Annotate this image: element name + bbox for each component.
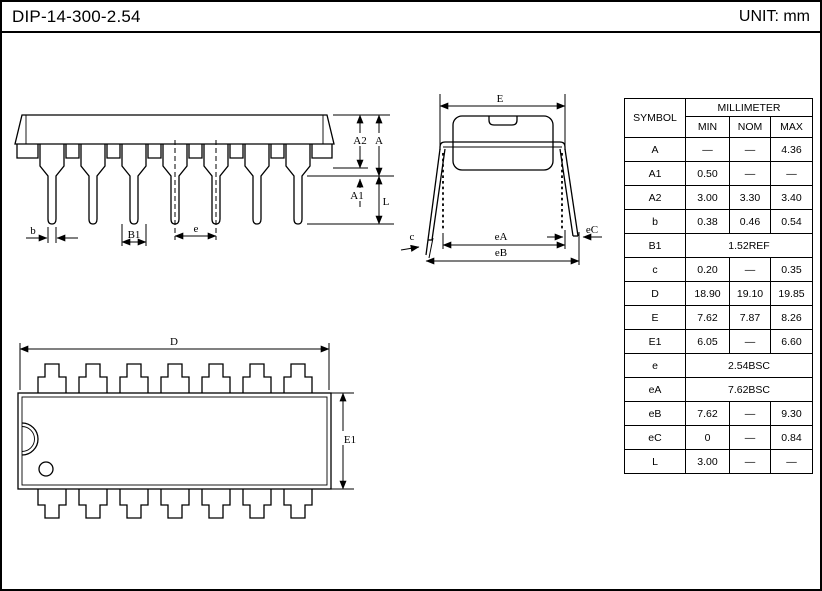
index-notch xyxy=(22,423,38,455)
side-view: e b B1 A2 A A1 xyxy=(15,115,394,246)
symbol-cell: B1 xyxy=(625,234,686,258)
symbol-cell: L xyxy=(625,450,686,474)
dim-label-c: c xyxy=(410,231,415,243)
symbol-cell: e xyxy=(625,354,686,378)
top-pins-upper xyxy=(38,364,312,393)
symbol-cell: A xyxy=(625,138,686,162)
table-row: E1 6.05 — 6.60 xyxy=(625,330,813,354)
symbol-cell: eB xyxy=(625,402,686,426)
dim-label-a: A xyxy=(375,135,383,147)
end-view: E c eA eB xyxy=(401,93,602,265)
table-row: A2 3.00 3.30 3.40 xyxy=(625,186,813,210)
table-row: eC 0 — 0.84 xyxy=(625,426,813,450)
symbol-cell: b xyxy=(625,210,686,234)
unit-label: UNIT: mm xyxy=(739,8,820,26)
dim-label-e1: E1 xyxy=(344,434,356,446)
symbol-cell: A2 xyxy=(625,186,686,210)
dim-label-d: D xyxy=(170,336,178,348)
dim-label-e-pitch: e xyxy=(194,223,199,235)
pin1-dot xyxy=(39,462,53,476)
table-row: L 3.00 — — xyxy=(625,450,813,474)
table-header-max: MAX xyxy=(771,117,813,138)
table-row: eA 7.62BSC xyxy=(625,378,813,402)
table-row: b 0.38 0.46 0.54 xyxy=(625,210,813,234)
dim-label-l: L xyxy=(383,196,390,208)
title-bar: DIP-14-300-2.54 UNIT: mm xyxy=(2,2,820,33)
dim-label-b1: B1 xyxy=(128,229,141,241)
package-title: DIP-14-300-2.54 xyxy=(2,7,141,27)
symbol-cell: eA xyxy=(625,378,686,402)
package-drawings: e b B1 A2 A A1 xyxy=(2,35,622,591)
table-row: B1 1.52REF xyxy=(625,234,813,258)
symbol-cell: eC xyxy=(625,426,686,450)
symbol-cell: D xyxy=(625,282,686,306)
top-pins-lower xyxy=(38,489,312,518)
table-row: eB 7.62 — 9.30 xyxy=(625,402,813,426)
table-header-symbol: SYMBOL xyxy=(625,99,686,138)
dim-label-b: b xyxy=(30,225,36,237)
dim-label-ec: eC xyxy=(586,224,598,236)
dim-label-a2: A2 xyxy=(353,135,366,147)
top-body xyxy=(18,393,331,489)
table-row: A1 0.50 — — xyxy=(625,162,813,186)
dim-label-ea: eA xyxy=(495,231,508,243)
dim-label-e-width: E xyxy=(497,93,504,105)
table-row: e 2.54BSC xyxy=(625,354,813,378)
dimension-table: SYMBOL MILLIMETER MIN NOM MAX A — — 4.36… xyxy=(624,98,813,474)
symbol-cell: E1 xyxy=(625,330,686,354)
table-row: D 18.90 19.10 19.85 xyxy=(625,282,813,306)
table-row: c 0.20 — 0.35 xyxy=(625,258,813,282)
table-header-millimeter: MILLIMETER xyxy=(686,99,813,117)
table-row: E 7.62 7.87 8.26 xyxy=(625,306,813,330)
symbol-cell: E xyxy=(625,306,686,330)
table-header-min: MIN xyxy=(686,117,730,138)
lead-frame xyxy=(440,142,565,150)
end-body xyxy=(453,116,553,170)
datasheet-page: DIP-14-300-2.54 UNIT: mm xyxy=(0,0,822,591)
top-view: D E1 xyxy=(18,336,359,518)
symbol-cell: c xyxy=(625,258,686,282)
table-row: A — — 4.36 xyxy=(625,138,813,162)
dim-label-a1: A1 xyxy=(350,190,363,202)
side-body xyxy=(15,115,334,144)
dim-label-eb: eB xyxy=(495,247,507,259)
symbol-cell: A1 xyxy=(625,162,686,186)
end-notch xyxy=(489,116,517,125)
table-header-nom: NOM xyxy=(730,117,771,138)
